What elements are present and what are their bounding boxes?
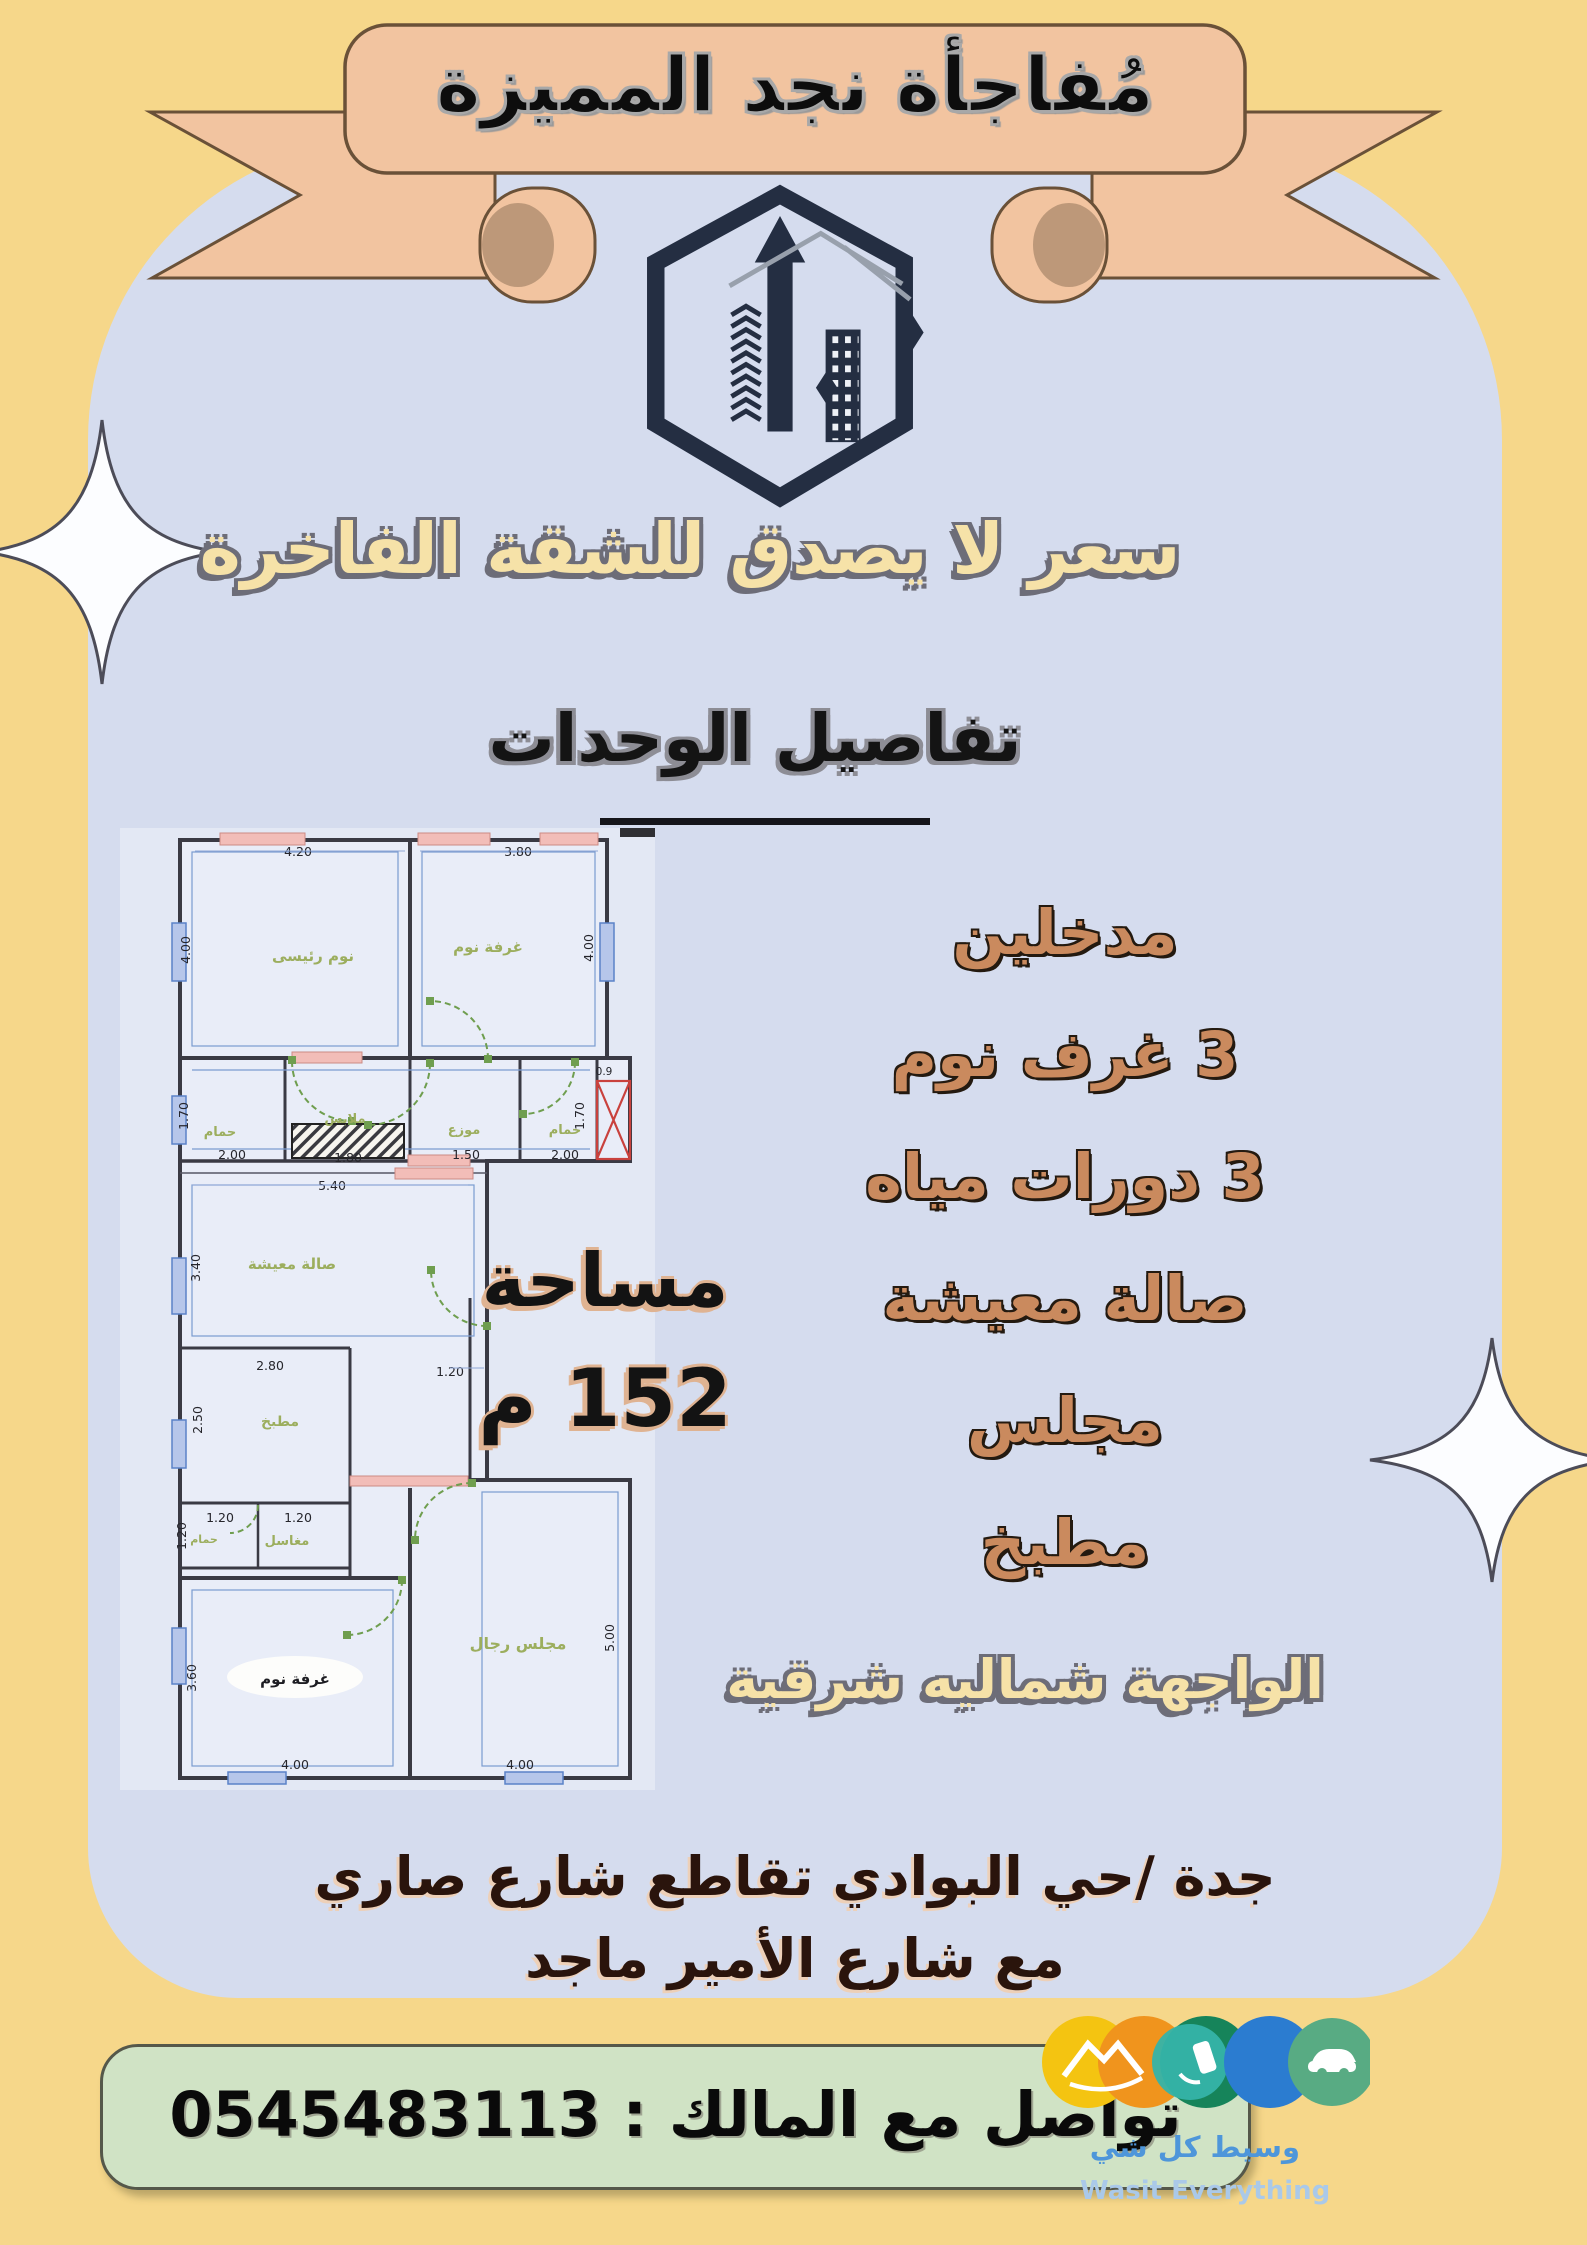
feature-bathrooms: 3 دورات مياه: [765, 1116, 1365, 1238]
room-label-bedroom2: غرفة نوم: [453, 938, 523, 956]
features-list: مدخلين 3 غرف نوم 3 دورات مياه صالة معيشة…: [765, 872, 1365, 1604]
feature-majlis: مجلس: [765, 1360, 1365, 1482]
banner-title: مُفاجأة نجد المميزة: [345, 40, 1245, 129]
area-value: 152 م: [440, 1352, 770, 1445]
address-block: جدة /حي البوادي تقاطع شارع صاري مع شارع …: [280, 1836, 1310, 2000]
dim-bath-l-w: 2.00: [218, 1147, 246, 1162]
feature-bedrooms: 3 غرف نوم: [765, 994, 1365, 1116]
dim-living-h: 3.40: [188, 1254, 203, 1282]
room-label-closet: ملابس: [324, 1112, 365, 1127]
feature-kitchen: مطبخ: [765, 1482, 1365, 1604]
dim-closet-w: 1.80: [334, 1150, 362, 1165]
dim-bed3-h: 3.60: [184, 1664, 199, 1692]
room-label-bath-left: حمام: [204, 1125, 237, 1140]
room-label-bedroom3: غرفة نوم: [260, 1670, 330, 1688]
feature-living-room: صالة معيشة: [765, 1238, 1365, 1360]
area-label: مساحة: [450, 1238, 760, 1324]
section-title: تفاصيل الوحدات: [445, 700, 1065, 777]
brand-name-ar: وسيط كل شي: [1090, 2130, 1300, 2164]
scan-artifact: [620, 828, 655, 837]
dim-kitchen-w: 2.80: [256, 1358, 284, 1373]
dim-majlis-w: 4.00: [506, 1757, 534, 1772]
dim-bath-r-w: 2.00: [551, 1147, 579, 1162]
room-label-kitchen: مطبخ: [261, 1414, 299, 1430]
facade-text: الواجهة شماليه شرقية: [715, 1648, 1335, 1711]
flyer-page: نوم رئيسى غرفة نوم حمام ملابس موزع حمام …: [0, 0, 1587, 2245]
room-label-hall: موزع: [448, 1123, 481, 1138]
dim-master-h: 4.00: [178, 936, 193, 964]
dim-bath-row-l: 1.70: [176, 1102, 191, 1130]
dim-majlis-h: 5.00: [602, 1624, 617, 1652]
brand-circle-teal: [1152, 2024, 1228, 2100]
dim-bed3-w: 4.00: [281, 1757, 309, 1772]
company-logo: [615, 182, 945, 512]
logo-chevron-tower: [731, 306, 760, 420]
dim-hall-w: 1.50: [452, 1147, 480, 1162]
dim-sink2: 1.20: [284, 1510, 312, 1525]
feature-entrances: مدخلين: [765, 872, 1365, 994]
sparkle-icon-right: [1340, 1330, 1587, 1600]
room-label-sinks: مغاسل: [265, 1534, 310, 1549]
dim-bed2-h: 4.00: [581, 934, 596, 962]
dim-shaft: 0.9: [596, 1066, 613, 1078]
room-label-living: صالة معيشة: [248, 1255, 336, 1273]
room-label-master: نوم رئيسى: [272, 947, 354, 965]
brand-logo: [1030, 2004, 1370, 2126]
dim-bath-s: 1.20: [174, 1522, 189, 1550]
dim-sink1: 1.20: [206, 1510, 234, 1525]
room-label-majlis: مجلس رجال: [470, 1634, 567, 1653]
dim-kitchen-h: 2.50: [190, 1406, 205, 1434]
brand-name-en: Wasit Everything: [1080, 2176, 1320, 2206]
section-underline: [600, 818, 930, 825]
contact-phone: 0545483113: [169, 2078, 600, 2151]
room-label-bath-small: حمام: [190, 1533, 218, 1546]
headline: سعر لا يصدق للشقة الفاخرة: [190, 508, 1190, 590]
dim-bath-row-r: 1.70: [572, 1102, 587, 1130]
address-line1: جدة /حي البوادي تقاطع شارع صاري: [280, 1836, 1310, 1918]
address-line2: مع شارع الأمير ماجد: [280, 1918, 1310, 2000]
